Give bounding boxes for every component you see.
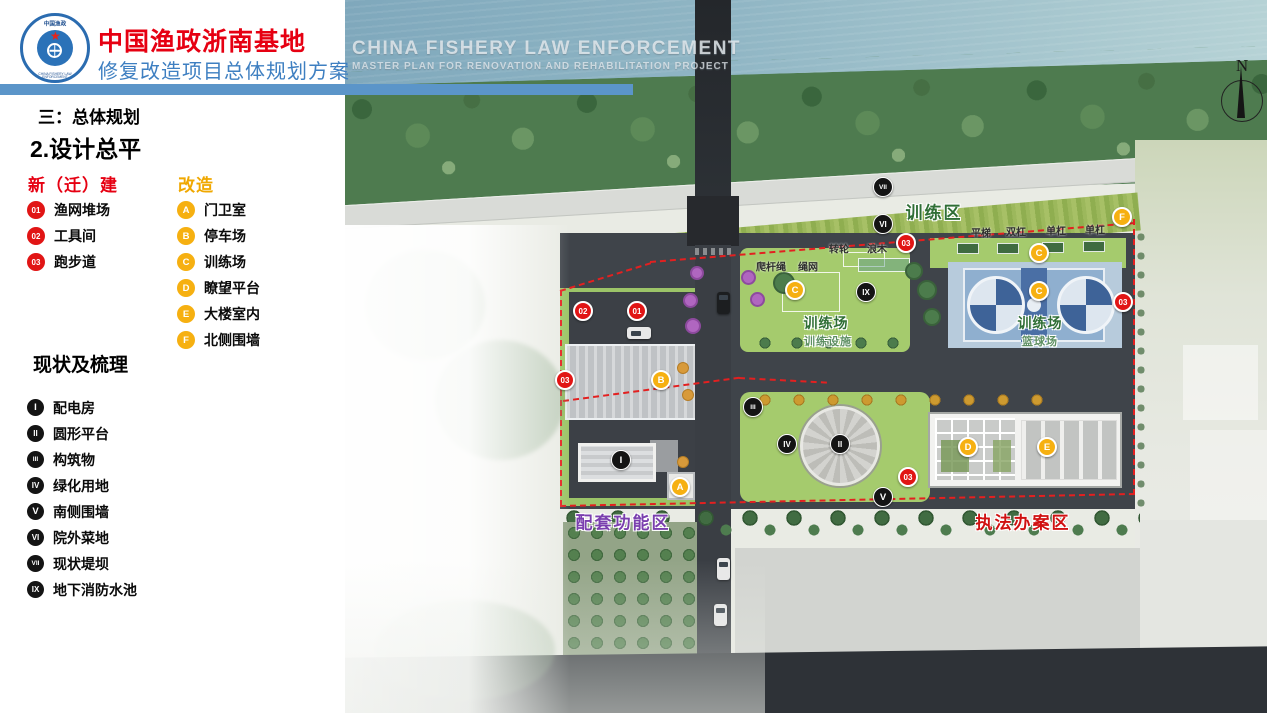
logo-bottom-text: CHINA FISHERY LAW ENFORCEMENT <box>37 73 72 80</box>
legend-item: 03跑步道 <box>27 253 110 271</box>
map-marker-03: 03 <box>898 467 918 487</box>
slide: 训练区训练场训练设施训练场篮球场配套功能区执法办案区爬杆绳绳网转轮浪木平梯双杠单… <box>0 0 1267 713</box>
legend-chip-D: D <box>177 279 195 297</box>
legend-item: VI院外菜地 <box>27 529 137 546</box>
legend-chip-III: III <box>27 451 44 468</box>
legend-label: 配电房 <box>53 398 95 418</box>
legend-chip-B: B <box>177 227 195 245</box>
page-title: 中国渔政浙南基地 <box>98 22 306 58</box>
legend-chip-C: C <box>177 253 195 271</box>
legend-chip-IV: IV <box>27 477 44 494</box>
map-marker-D: D <box>958 437 978 457</box>
map-marker-II: II <box>830 434 850 454</box>
legend-item: F北侧围墙 <box>177 331 260 349</box>
legend-new-title: 新（迁）建 <box>28 171 118 196</box>
map-marker-I: I <box>611 450 631 470</box>
legend-label: 北侧围墙 <box>204 330 260 350</box>
legend-label: 瞭望平台 <box>204 278 260 298</box>
legend-label: 工具间 <box>54 226 96 246</box>
legend-label: 门卫室 <box>204 200 246 220</box>
legend-new-list: 01渔网堆场02工具间03跑步道 <box>27 201 110 279</box>
compass-needle-icon <box>1237 66 1245 118</box>
legend-item: E大楼室内 <box>177 305 260 323</box>
legend-chip-01: 01 <box>27 201 45 219</box>
legend-label: 地下消防水池 <box>53 580 137 600</box>
legend-renovation-list: A门卫室B停车场C训练场D瞭望平台E大楼室内F北侧围墙 <box>177 201 260 357</box>
map-markers-layer: 020103030303ABCCCDEFIIIIIIIVVVIVIIIX <box>345 0 1267 713</box>
map-marker-A: A <box>670 477 690 497</box>
map-marker-03: 03 <box>896 233 916 253</box>
ship-wheel-icon <box>47 43 62 58</box>
legend-item: C训练场 <box>177 253 260 271</box>
legend-chip-E: E <box>177 305 195 323</box>
legend-label: 绿化用地 <box>53 476 109 496</box>
legend-chip-I: I <box>27 399 44 416</box>
map-marker-C: C <box>785 280 805 300</box>
legend-item: IX地下消防水池 <box>27 581 137 598</box>
legend-label: 训练场 <box>204 252 246 272</box>
legend-chip-03: 03 <box>27 253 45 271</box>
legend-chip-02: 02 <box>27 227 45 245</box>
legend-item: A门卫室 <box>177 201 260 219</box>
legend-renovation-title: 改造 <box>178 171 214 196</box>
legend-chip-F: F <box>177 331 195 349</box>
map-marker-E: E <box>1037 437 1057 457</box>
map-marker-01: 01 <box>627 301 647 321</box>
legend-label: 渔网堆场 <box>54 200 110 220</box>
legend-item: 01渔网堆场 <box>27 201 110 219</box>
map-marker-IX: IX <box>856 282 876 302</box>
legend-chip-VII: VII <box>27 555 44 572</box>
legend-label: 大楼室内 <box>204 304 260 324</box>
legend-item: D瞭望平台 <box>177 279 260 297</box>
legend-chip-VI: VI <box>27 529 44 546</box>
watermark-line1: CHINA FISHERY LAW ENFORCEMENT <box>352 38 741 60</box>
legend-item: B停车场 <box>177 227 260 245</box>
legend-label: 院外菜地 <box>53 528 109 548</box>
legend-chip-IX: IX <box>27 581 44 598</box>
legend-item: I配电房 <box>27 399 137 416</box>
legend-item: VII现状堤坝 <box>27 555 137 572</box>
map-marker-V: V <box>873 487 893 507</box>
map-marker-C: C <box>1029 281 1049 301</box>
legend-item: V南侧围墙 <box>27 503 137 520</box>
map-marker-C: C <box>1029 243 1049 263</box>
legend-chip-A: A <box>177 201 195 219</box>
header-divider-bar <box>0 84 633 95</box>
legend-existing-title: 现状及梳理 <box>33 350 128 377</box>
map-marker-IV: IV <box>777 434 797 454</box>
map-marker-03: 03 <box>555 370 575 390</box>
legend-label: 构筑物 <box>53 450 95 470</box>
legend-label: 跑步道 <box>54 252 96 272</box>
map-marker-VII: VII <box>873 177 893 197</box>
map-marker-III: III <box>743 397 763 417</box>
map-marker-VI: VI <box>873 214 893 234</box>
watermark-line2: MASTER PLAN FOR RENOVATION AND REHABILIT… <box>352 61 729 72</box>
map-marker-B: B <box>651 370 671 390</box>
site-plan-map: 训练区训练场训练设施训练场篮球场配套功能区执法办案区爬杆绳绳网转轮浪木平梯双杠单… <box>345 0 1267 713</box>
legend-label: 现状堤坝 <box>53 554 109 574</box>
agency-logo: 中国渔政 ★ CHINA FISHERY LAW ENFORCEMENT <box>20 13 90 83</box>
legend-item: II圆形平台 <box>27 425 137 442</box>
star-icon: ★ <box>50 30 62 42</box>
map-marker-02: 02 <box>573 301 593 321</box>
legend-chip-V: V <box>27 503 44 520</box>
legend-item: III构筑物 <box>27 451 137 468</box>
legend-chip-II: II <box>27 425 44 442</box>
map-marker-03: 03 <box>1113 292 1133 312</box>
legend-label: 圆形平台 <box>53 424 109 444</box>
legend-item: 02工具间 <box>27 227 110 245</box>
sheet-heading: 2.设计总平 <box>30 130 141 164</box>
legend-label: 南侧围墙 <box>53 502 109 522</box>
section-heading: 三：总体规划 <box>38 103 140 128</box>
legend-existing-list: I配电房II圆形平台III构筑物IV绿化用地V南侧围墙VI院外菜地VII现状堤坝… <box>27 399 137 607</box>
logo-top-text: 中国渔政 <box>29 20 80 28</box>
logo-disc: ★ <box>37 30 73 66</box>
page-subtitle: 修复改造项目总体规划方案 <box>98 55 350 84</box>
map-marker-F: F <box>1112 207 1132 227</box>
legend-label: 停车场 <box>204 226 246 246</box>
legend-item: IV绿化用地 <box>27 477 137 494</box>
